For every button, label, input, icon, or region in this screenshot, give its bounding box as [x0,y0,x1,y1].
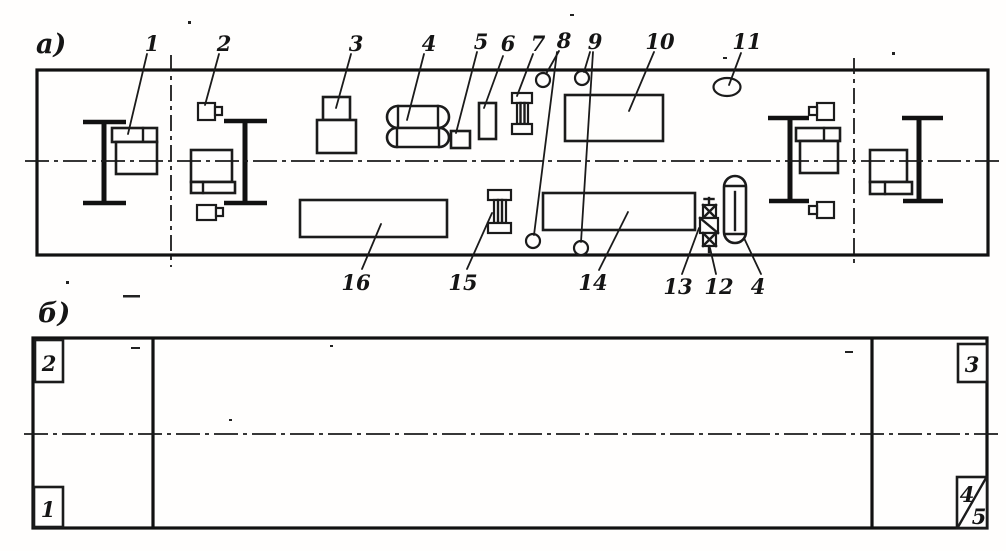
oval-11 [714,78,741,96]
zone-label: 3 [965,352,980,377]
leader-line [128,54,147,134]
spool-flange [512,93,532,103]
speck [188,21,191,24]
speck [892,52,895,55]
callout-label: 6 [501,31,516,56]
equipment-box-14 [543,193,695,230]
motor-body [817,202,834,218]
callout-label: 1 [145,31,160,56]
callout-1: 1 [128,31,159,134]
component-1-box-right [796,128,840,173]
scan-artifacts [66,14,895,421]
body [800,141,838,173]
leader-line [205,54,219,105]
zone-marker-top-left: 2 [35,340,63,382]
callout-label: 4 [422,31,437,56]
motor-nub [809,206,817,214]
zone-label: 2 [41,351,57,376]
callout-label: 5 [474,29,489,54]
traction-motor-bottom [809,202,834,218]
leader-line [682,228,699,274]
tank-upper [387,106,449,128]
callout-label: 2 [216,31,232,56]
view-a-datum-lines [25,55,1002,267]
air-tanks-4 [387,106,449,147]
speck [570,14,574,16]
component-1-body [116,142,157,174]
motor-body [197,205,216,220]
motor-nub [215,107,222,115]
view-a-label: а) [36,29,66,60]
traction-motor-top [809,103,834,120]
speck [845,351,853,353]
view-a: а) [25,28,1002,299]
traction-motor-top [198,103,222,120]
gearbox-strip [870,182,912,194]
gearbox-body [870,150,907,182]
callout-label: 7 [531,31,546,56]
callout-label: 16 [341,270,371,295]
component-5 [451,131,470,148]
callout-label: 12 [704,274,733,299]
speck [131,347,140,349]
leader-line [456,52,477,133]
zone-label: 1 [41,497,56,522]
callout-label: 11 [732,29,761,54]
circle-9-top [575,71,589,85]
callout-label: 10 [645,29,675,54]
view-b: б) 2 1 3 4 5 [24,298,1002,529]
strip [796,128,840,141]
view-b-frame [33,338,987,528]
scanned-technical-figure: а) [0,0,1006,551]
gearbox-right [870,150,912,194]
figure-canvas: а) [0,0,1006,551]
air-reservoir-4-vertical [724,176,746,243]
callout-4-bottom: 4 [744,238,765,299]
view-b-label: б) [38,298,70,329]
speck [229,419,232,421]
callout-label: 9 [588,29,603,54]
callout-2: 2 [205,31,231,105]
circle-8-bottom [526,234,540,248]
equipment-box-16 [300,200,447,237]
spool-waist [517,103,528,124]
callout-13: 13 [663,228,699,299]
leader-line [517,54,533,96]
zone-marker-bottom-left: 1 [34,487,63,527]
spool-waist [494,200,506,223]
motor-body [817,103,834,120]
spool-flange [488,190,511,200]
motor-nub [809,107,817,115]
callout-11: 11 [729,29,762,85]
zone-marker-top-right: 3 [958,344,987,382]
leader-line [710,248,716,274]
component-3-body [317,120,356,153]
motor-body [198,103,215,120]
gearbox-strip [191,182,235,193]
gearbox-left [191,150,235,193]
motor-nub [216,208,223,216]
speck [330,345,333,347]
component-15-spool [488,190,511,233]
speck [723,57,727,59]
leader-line [484,56,503,108]
component-6 [479,103,496,139]
gearbox-body [191,150,232,182]
circle-9-bottom [574,241,588,255]
component-7-spool [512,93,532,134]
component-1-strip [112,128,157,142]
callout-label: 15 [448,270,477,295]
component-1-box [112,128,157,174]
callout-label: 14 [578,270,607,295]
speck [66,281,69,284]
callout-label: 3 [349,31,364,56]
callout-label: 13 [663,274,692,299]
valve-assembly-12-13 [700,198,718,252]
traction-motor-bottom [197,205,223,220]
callout-label: 4 [751,274,766,299]
circle-8-top [536,73,550,87]
callout-label: 8 [556,28,572,53]
speck [123,295,140,298]
zone-marker-bottom-right: 4 5 [957,477,987,529]
leader-line [467,213,492,269]
equipment-box-10 [565,95,663,141]
zone-label-lower: 5 [972,504,987,529]
spool-flange [488,223,511,233]
spool-flange [512,124,532,134]
